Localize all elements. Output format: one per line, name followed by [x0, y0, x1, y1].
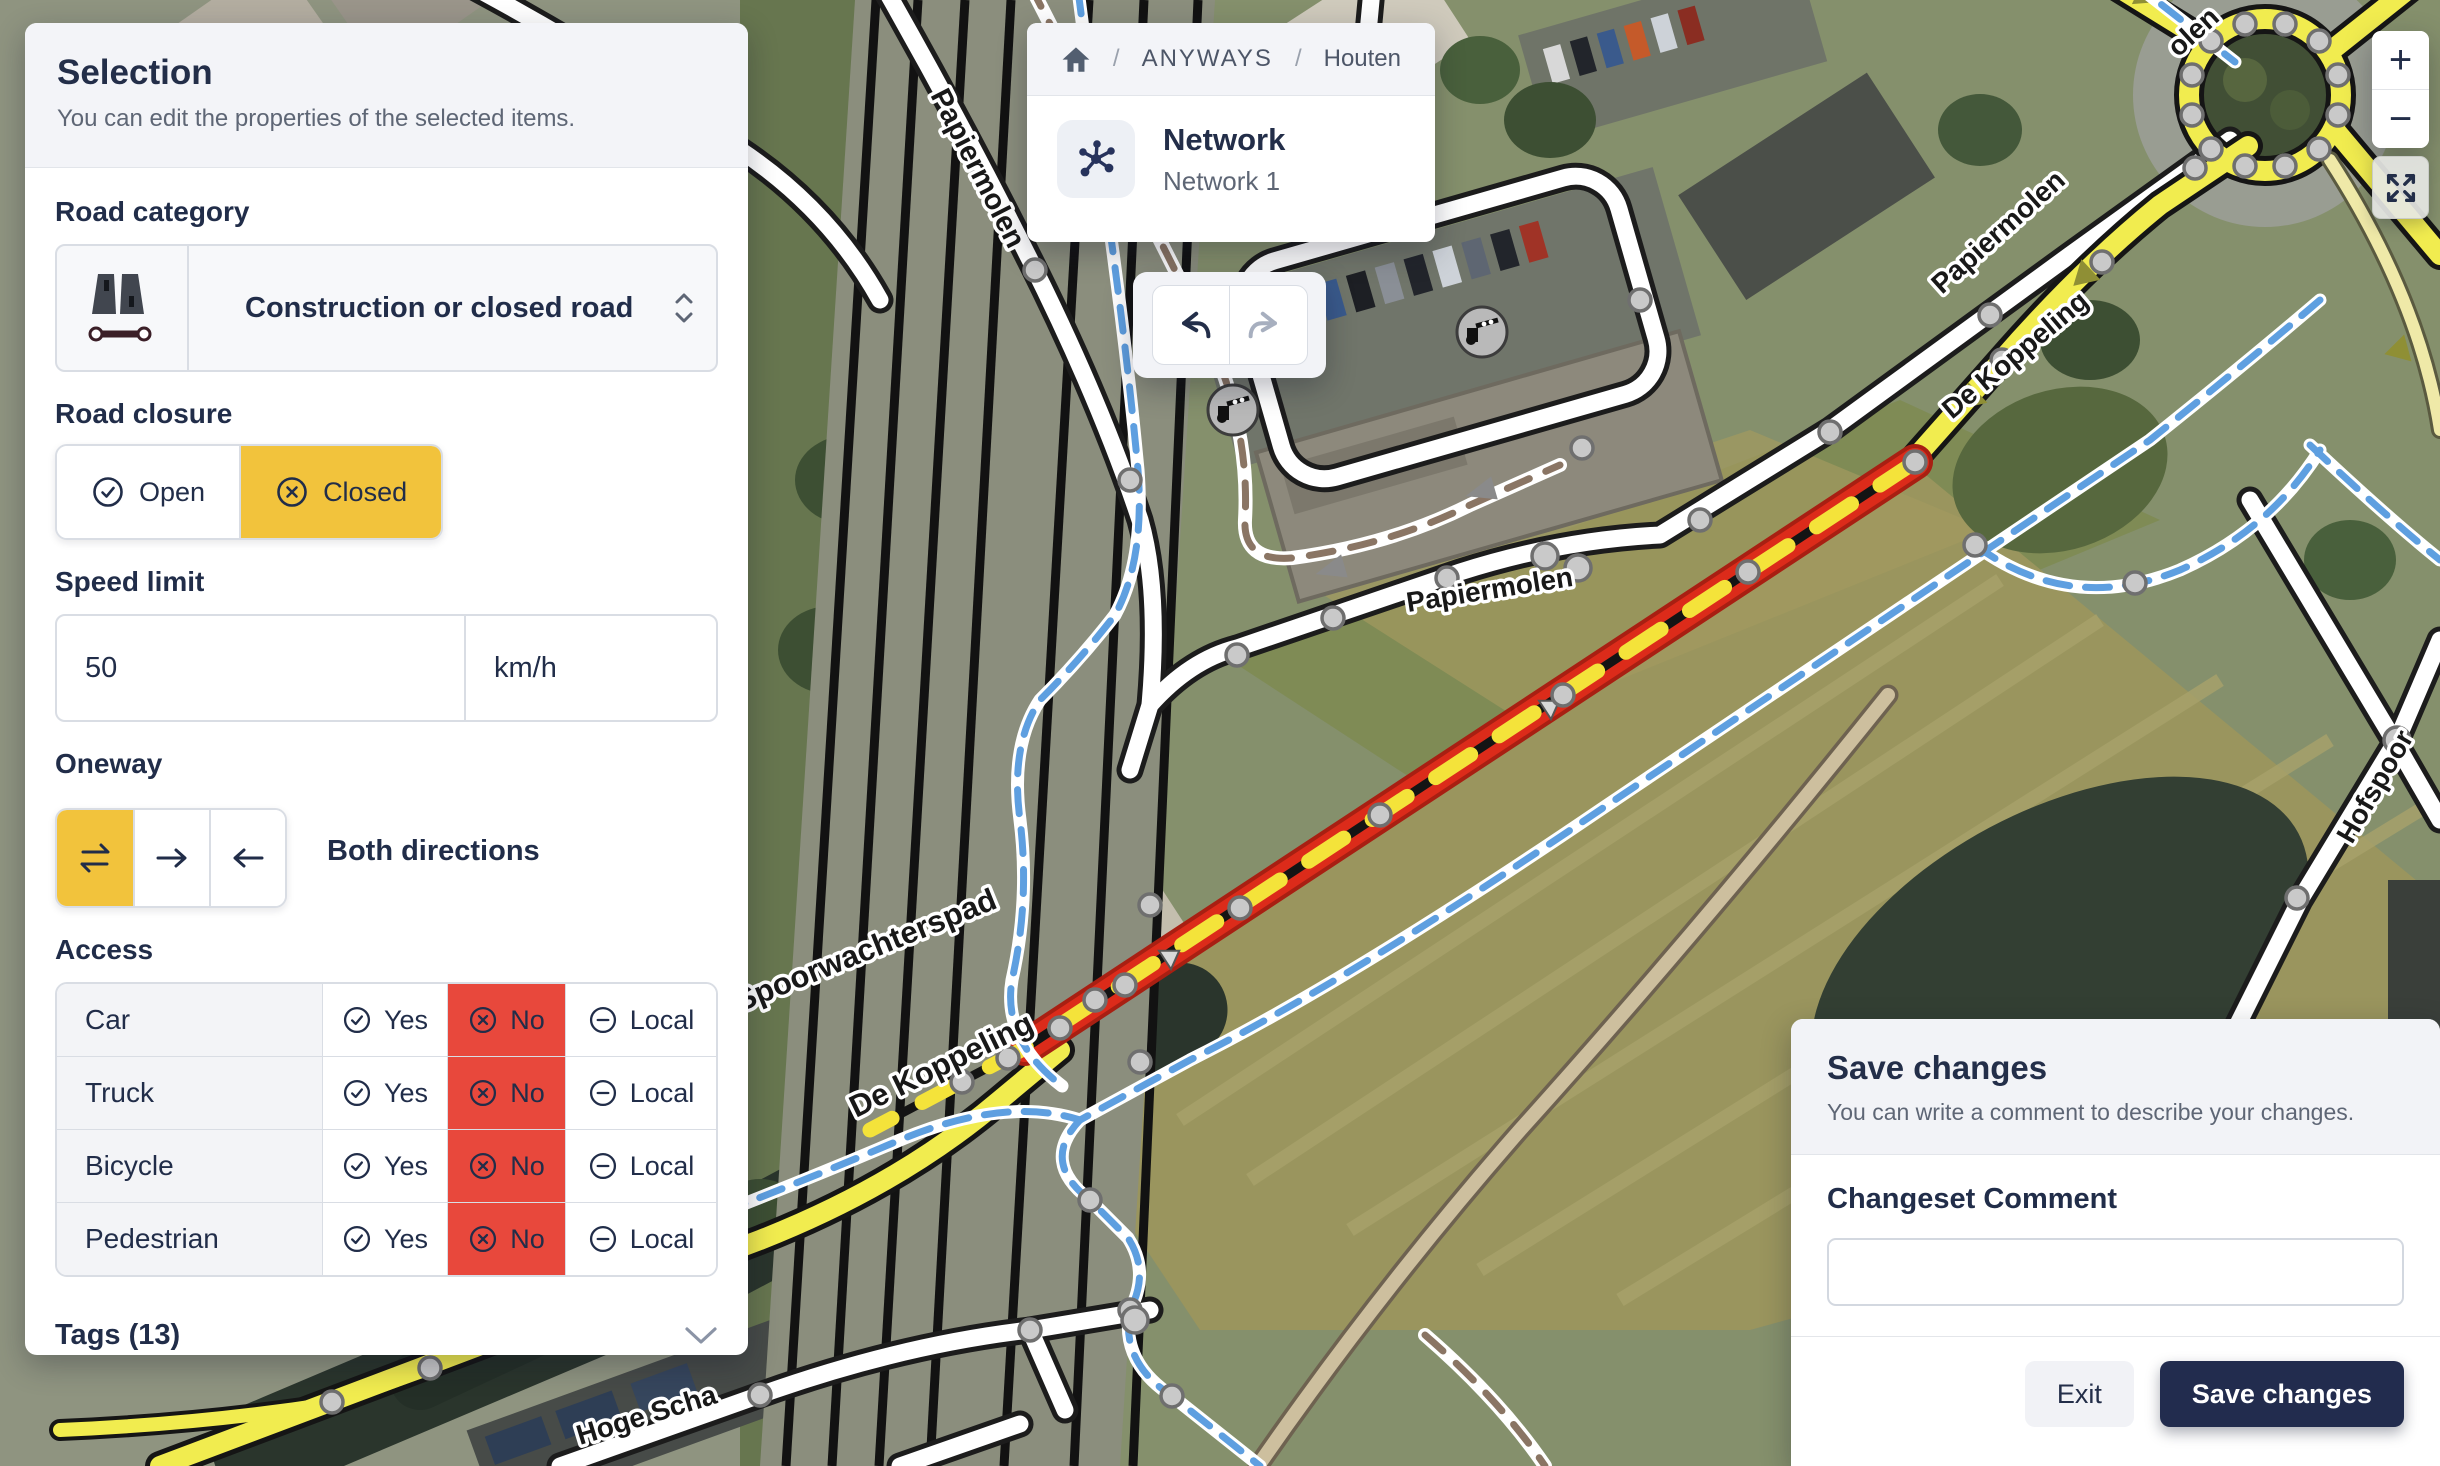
- undo-button[interactable]: [1153, 286, 1230, 364]
- x-circle-icon: [468, 1224, 498, 1254]
- save-changes-panel: Save changes You can write a comment to …: [1791, 1019, 2440, 1466]
- network-subtitle: Network 1: [1163, 166, 1285, 197]
- tags-expander[interactable]: Tags (13): [55, 1319, 718, 1352]
- oneway-value-label: Both directions: [327, 835, 540, 868]
- access-yes-cell[interactable]: Yes: [323, 1203, 448, 1275]
- minus-circle-icon: [588, 1005, 618, 1035]
- access-row-name: Car: [57, 984, 323, 1056]
- x-circle-icon: [275, 475, 309, 509]
- breadcrumb: / ANYWAYS / Houten: [1027, 23, 1435, 96]
- speed-limit-field: km/h: [55, 614, 718, 722]
- home-icon[interactable]: [1061, 45, 1091, 73]
- both-directions-icon: [75, 840, 115, 876]
- speed-limit-label: Speed limit: [55, 566, 718, 598]
- save-panel-subtitle: You can write a comment to describe your…: [1827, 1099, 2404, 1126]
- chevron-updown-icon: [652, 246, 716, 370]
- access-yes-cell[interactable]: Yes: [323, 1057, 448, 1129]
- fullscreen-icon: [2382, 169, 2420, 207]
- zoom-in-label: +: [2389, 40, 2412, 80]
- access-label: Access: [55, 934, 718, 966]
- x-circle-icon: [468, 1078, 498, 1108]
- road-category-select[interactable]: Construction or closed road: [55, 244, 718, 372]
- chevron-down-icon: [684, 1326, 718, 1346]
- road-category-value: Construction or closed road: [189, 246, 652, 370]
- map-zoom-control: + −: [2372, 31, 2429, 148]
- breadcrumb-separator: /: [1113, 45, 1120, 73]
- undo-icon: [1170, 305, 1212, 345]
- breadcrumb-item-anyways[interactable]: ANYWAYS: [1142, 45, 1273, 73]
- access-no-cell[interactable]: No: [448, 984, 566, 1056]
- check-circle-icon: [342, 1005, 372, 1035]
- access-row-name: Bicycle: [57, 1130, 323, 1202]
- minus-circle-icon: [588, 1078, 618, 1108]
- panel-subtitle: You can edit the properties of the selec…: [57, 105, 716, 133]
- access-local-cell[interactable]: Local: [566, 1130, 716, 1202]
- table-row: Car Yes No Local: [57, 984, 716, 1056]
- tags-label: Tags (13): [55, 1319, 180, 1352]
- zoom-in-button[interactable]: +: [2372, 31, 2429, 89]
- table-row: Bicycle Yes No Local: [57, 1129, 716, 1202]
- breadcrumb-item-houten[interactable]: Houten: [1324, 45, 1401, 73]
- table-row: Pedestrian Yes No Local: [57, 1202, 716, 1275]
- bush: [2270, 90, 2310, 130]
- network-icon: [1057, 120, 1135, 198]
- x-circle-icon: [468, 1005, 498, 1035]
- table-row: Truck Yes No Local: [57, 1056, 716, 1129]
- check-circle-icon: [342, 1224, 372, 1254]
- minus-circle-icon: [588, 1224, 618, 1254]
- save-changes-button[interactable]: Save changes: [2160, 1361, 2404, 1427]
- road-category-label: Road category: [55, 196, 718, 228]
- changeset-comment-label: Changeset Comment: [1827, 1183, 2404, 1216]
- oneway-forward-button[interactable]: [133, 810, 209, 906]
- access-row-name: Truck: [57, 1057, 323, 1129]
- network-header-card: / ANYWAYS / Houten Network Network 1: [1027, 23, 1435, 242]
- access-no-cell[interactable]: No: [448, 1057, 566, 1129]
- arrow-left-icon: [230, 846, 266, 870]
- oneway-both-button[interactable]: [57, 810, 133, 906]
- closure-closed-button[interactable]: Closed: [239, 446, 441, 538]
- check-circle-icon: [342, 1078, 372, 1108]
- breadcrumb-separator: /: [1295, 45, 1302, 73]
- selection-panel: Selection You can edit the properties of…: [25, 23, 748, 1355]
- closure-closed-label: Closed: [323, 477, 407, 508]
- x-circle-icon: [468, 1151, 498, 1181]
- minus-circle-icon: [588, 1151, 618, 1181]
- check-circle-icon: [342, 1151, 372, 1181]
- access-no-cell[interactable]: No: [448, 1130, 566, 1202]
- panel-title: Selection: [57, 53, 716, 93]
- redo-icon: [1247, 305, 1289, 345]
- arrow-right-icon: [154, 846, 190, 870]
- check-circle-icon: [91, 475, 125, 509]
- redo-button[interactable]: [1229, 286, 1307, 364]
- closure-open-button[interactable]: Open: [57, 446, 239, 538]
- changeset-comment-input[interactable]: [1827, 1238, 2404, 1306]
- oneway-toggle: [55, 808, 287, 908]
- zoom-out-label: −: [2389, 99, 2412, 139]
- oneway-backward-button[interactable]: [209, 810, 285, 906]
- network-title: Network: [1163, 122, 1285, 158]
- access-yes-cell[interactable]: Yes: [323, 984, 448, 1056]
- undo-redo-card: [1133, 272, 1326, 378]
- access-yes-cell[interactable]: Yes: [323, 1130, 448, 1202]
- oneway-label: Oneway: [55, 748, 718, 780]
- access-local-cell[interactable]: Local: [566, 1057, 716, 1129]
- road-closure-label: Road closure: [55, 398, 718, 430]
- exit-button[interactable]: Exit: [2025, 1361, 2134, 1427]
- road-category-icon: [57, 246, 189, 370]
- access-local-cell[interactable]: Local: [566, 1203, 716, 1275]
- access-no-cell[interactable]: No: [448, 1203, 566, 1275]
- access-table: Car Yes No Local Truck Yes No Local Bicy…: [55, 982, 718, 1277]
- speed-limit-input[interactable]: [57, 616, 464, 720]
- access-row-name: Pedestrian: [57, 1203, 323, 1275]
- speed-limit-unit: km/h: [464, 616, 716, 720]
- access-local-cell[interactable]: Local: [566, 984, 716, 1056]
- fullscreen-button[interactable]: [2372, 156, 2429, 219]
- save-panel-title: Save changes: [1827, 1049, 2404, 1087]
- road-closure-toggle: Open Closed: [55, 444, 443, 540]
- closure-open-label: Open: [139, 477, 205, 508]
- selection-panel-header: Selection You can edit the properties of…: [25, 23, 748, 168]
- zoom-out-button[interactable]: −: [2372, 89, 2429, 148]
